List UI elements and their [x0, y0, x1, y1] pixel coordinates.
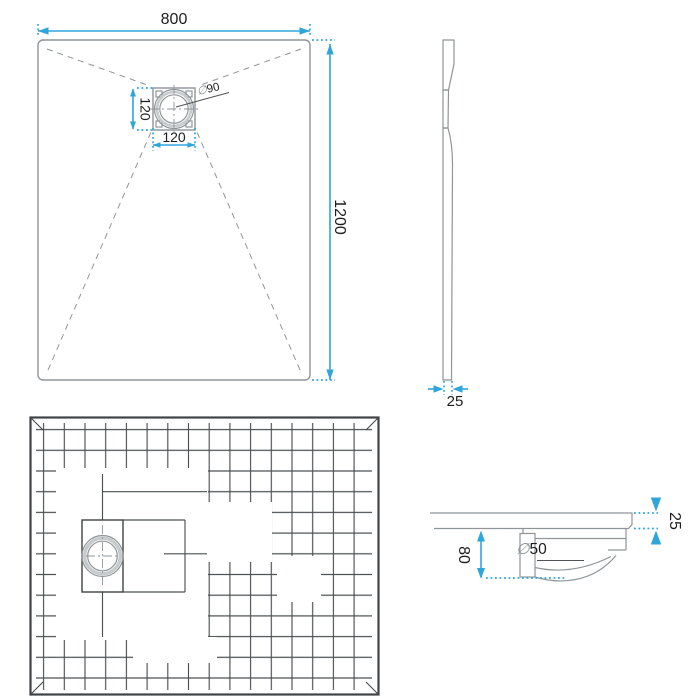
diameter-value: 50	[530, 541, 547, 558]
diameter-symbol: ∅	[516, 541, 530, 558]
dim-label-side-thickness-25: 25	[433, 394, 477, 408]
dim-label-width-800: 800	[138, 12, 210, 28]
dim-label-height-1200: 1200	[331, 199, 347, 235]
drawing-linework	[0, 0, 700, 700]
dim-label-drain-depth-80: 80	[455, 544, 471, 566]
dim-section-25-linework	[634, 498, 661, 545]
side-view-linework	[428, 40, 468, 395]
shower-tray-technical-drawing: 800 1200 120 120 ∅90 25 80 ∅50 25	[0, 0, 700, 700]
texture-view-linework	[31, 418, 379, 695]
top-view-linework	[38, 24, 335, 380]
dim-label-drain-120-vertical: 120	[139, 96, 153, 123]
section-view-linework	[430, 498, 661, 581]
diameter-value: 90	[206, 81, 221, 96]
dim-label-pipe-diameter-50: ∅50	[516, 542, 576, 558]
dim-label-drain-120-horizontal: 120	[152, 130, 196, 144]
dim-label-section-thickness-25: 25	[666, 509, 682, 533]
